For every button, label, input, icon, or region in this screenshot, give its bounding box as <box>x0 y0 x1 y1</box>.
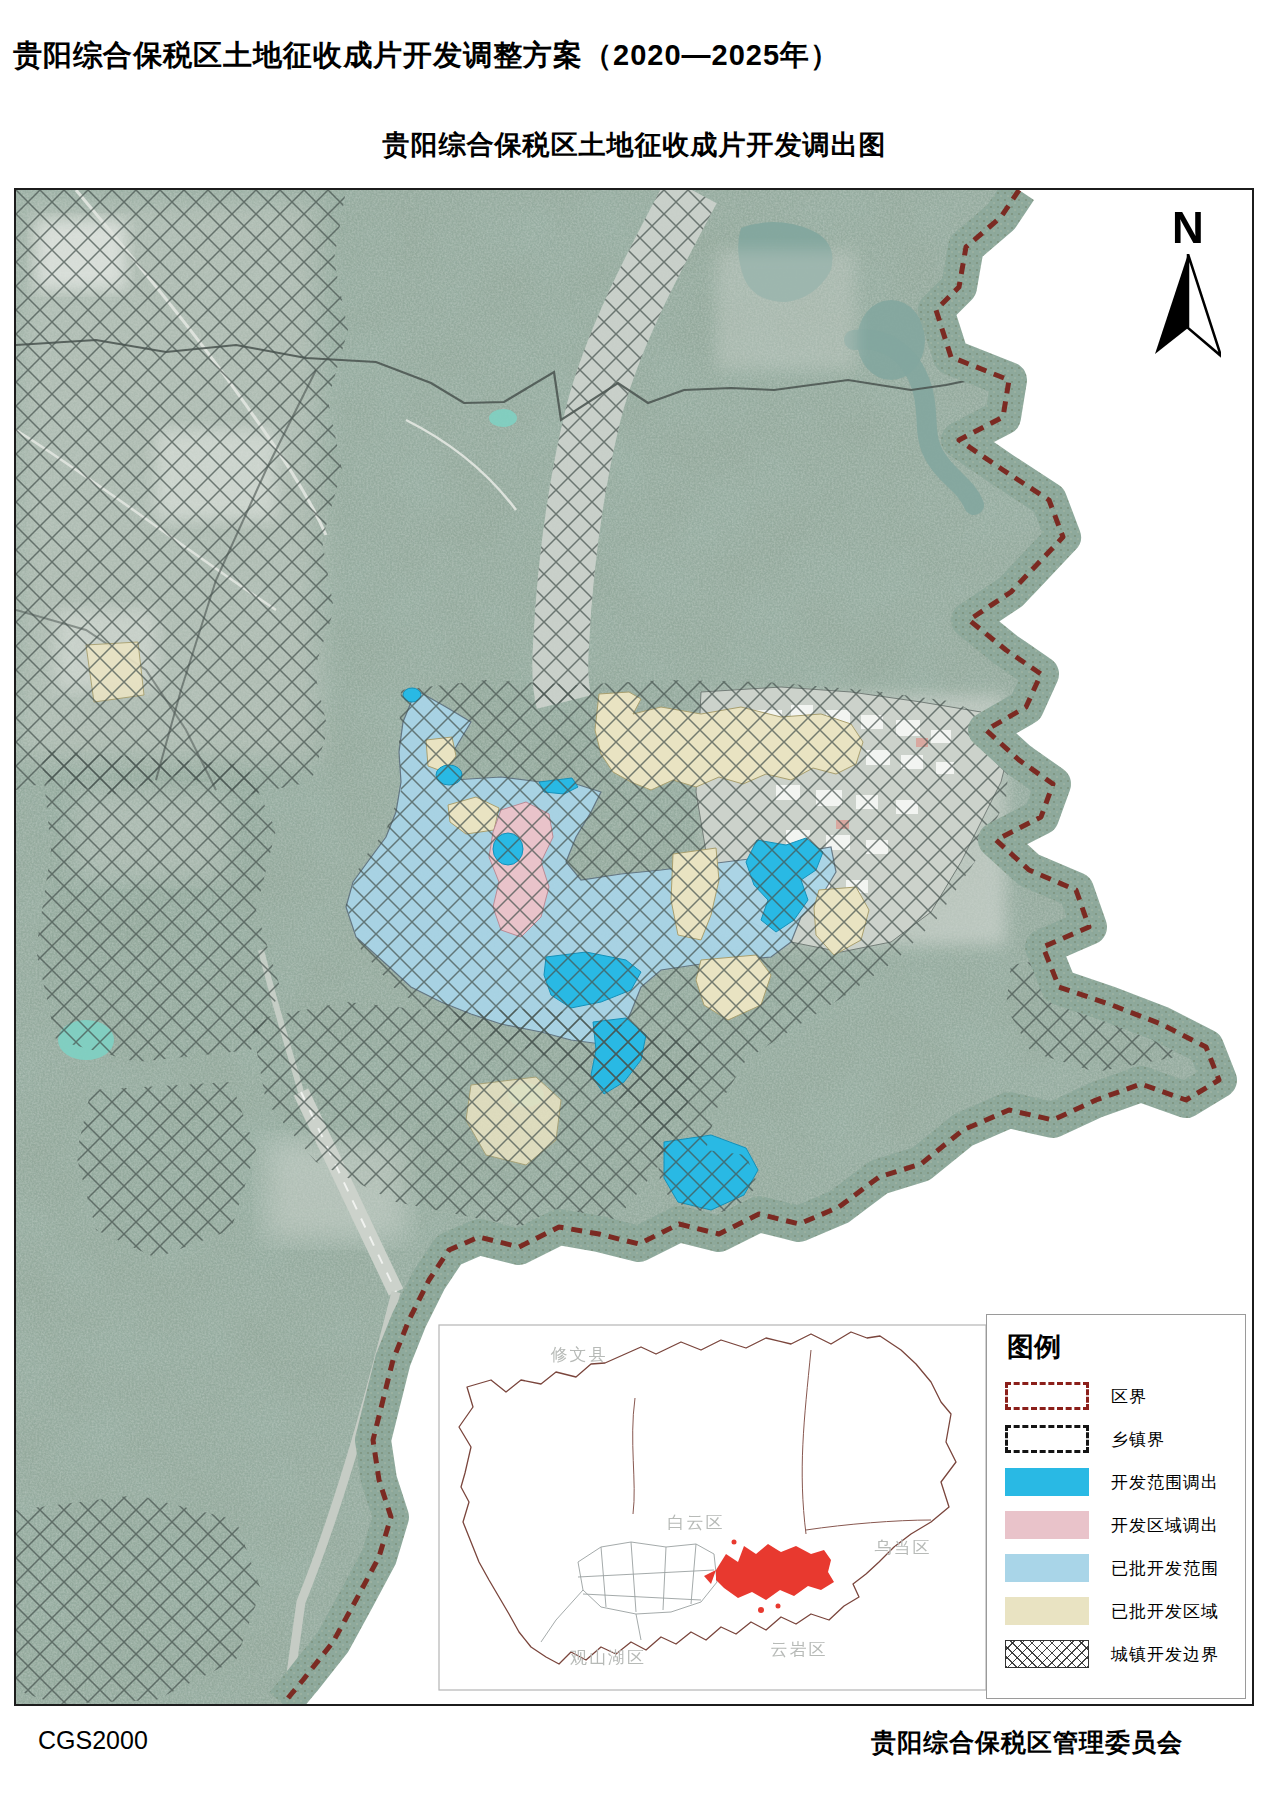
legend-title: 图例 <box>1007 1329 1245 1365</box>
inset-label-guanshanhu: 观山湖区 <box>570 1646 646 1669</box>
north-arrow: N <box>1152 206 1224 362</box>
plan-document-page: 贵阳综合保税区土地征收成片开发调整方案（2020—2025年） 贵阳综合保税区土… <box>0 0 1269 1796</box>
legend-item-township-boundary: 乡镇界 <box>1005 1424 1245 1454</box>
inset-map[interactable] <box>439 1325 986 1690</box>
approved-area-swatch <box>1005 1597 1089 1625</box>
issuer-label: 贵阳综合保税区管理委员会 <box>871 1726 1183 1759</box>
inset-label-wudang: 乌当区 <box>875 1536 932 1559</box>
approved-scope-swatch <box>1005 1554 1089 1582</box>
legend-item-scope-out: 开发范围调出 <box>1005 1467 1245 1497</box>
inset-label-baiyun: 白云区 <box>668 1511 725 1534</box>
township-boundary-swatch <box>1005 1425 1089 1453</box>
legend-item-area-out: 开发区域调出 <box>1005 1510 1245 1540</box>
legend-item-approved-scope: 已批开发范围 <box>1005 1553 1245 1583</box>
district-boundary-swatch <box>1005 1382 1089 1410</box>
inset-label-yunyan: 云岩区 <box>771 1638 828 1661</box>
legend-item-district-boundary: 区界 <box>1005 1381 1245 1411</box>
inset-label-xiuwen: 修文县 <box>551 1343 608 1366</box>
map-title: 贵阳综合保税区土地征收成片开发调出图 <box>0 127 1269 163</box>
legend-item-approved-area: 已批开发区域 <box>1005 1596 1245 1626</box>
urban-boundary-swatch <box>1005 1640 1089 1668</box>
legend-item-urban-boundary: 城镇开发边界 <box>1005 1639 1245 1669</box>
scope-out-swatch <box>1005 1468 1089 1496</box>
north-label: N <box>1152 206 1224 250</box>
area-out-swatch <box>1005 1511 1089 1539</box>
document-title: 贵阳综合保税区土地征收成片开发调整方案（2020—2025年） <box>13 36 840 76</box>
north-arrow-icon <box>1155 254 1221 358</box>
coordinate-system-label: CGS2000 <box>38 1726 148 1755</box>
legend-panel: 图例 区界 乡镇界 开发范围调出 开发区域调出 已批开发范围 <box>986 1314 1246 1699</box>
map-canvas[interactable]: N 修文县 白云区 乌当区 观山湖区 云岩区 图例 区界 乡镇界 开 <box>14 188 1254 1706</box>
